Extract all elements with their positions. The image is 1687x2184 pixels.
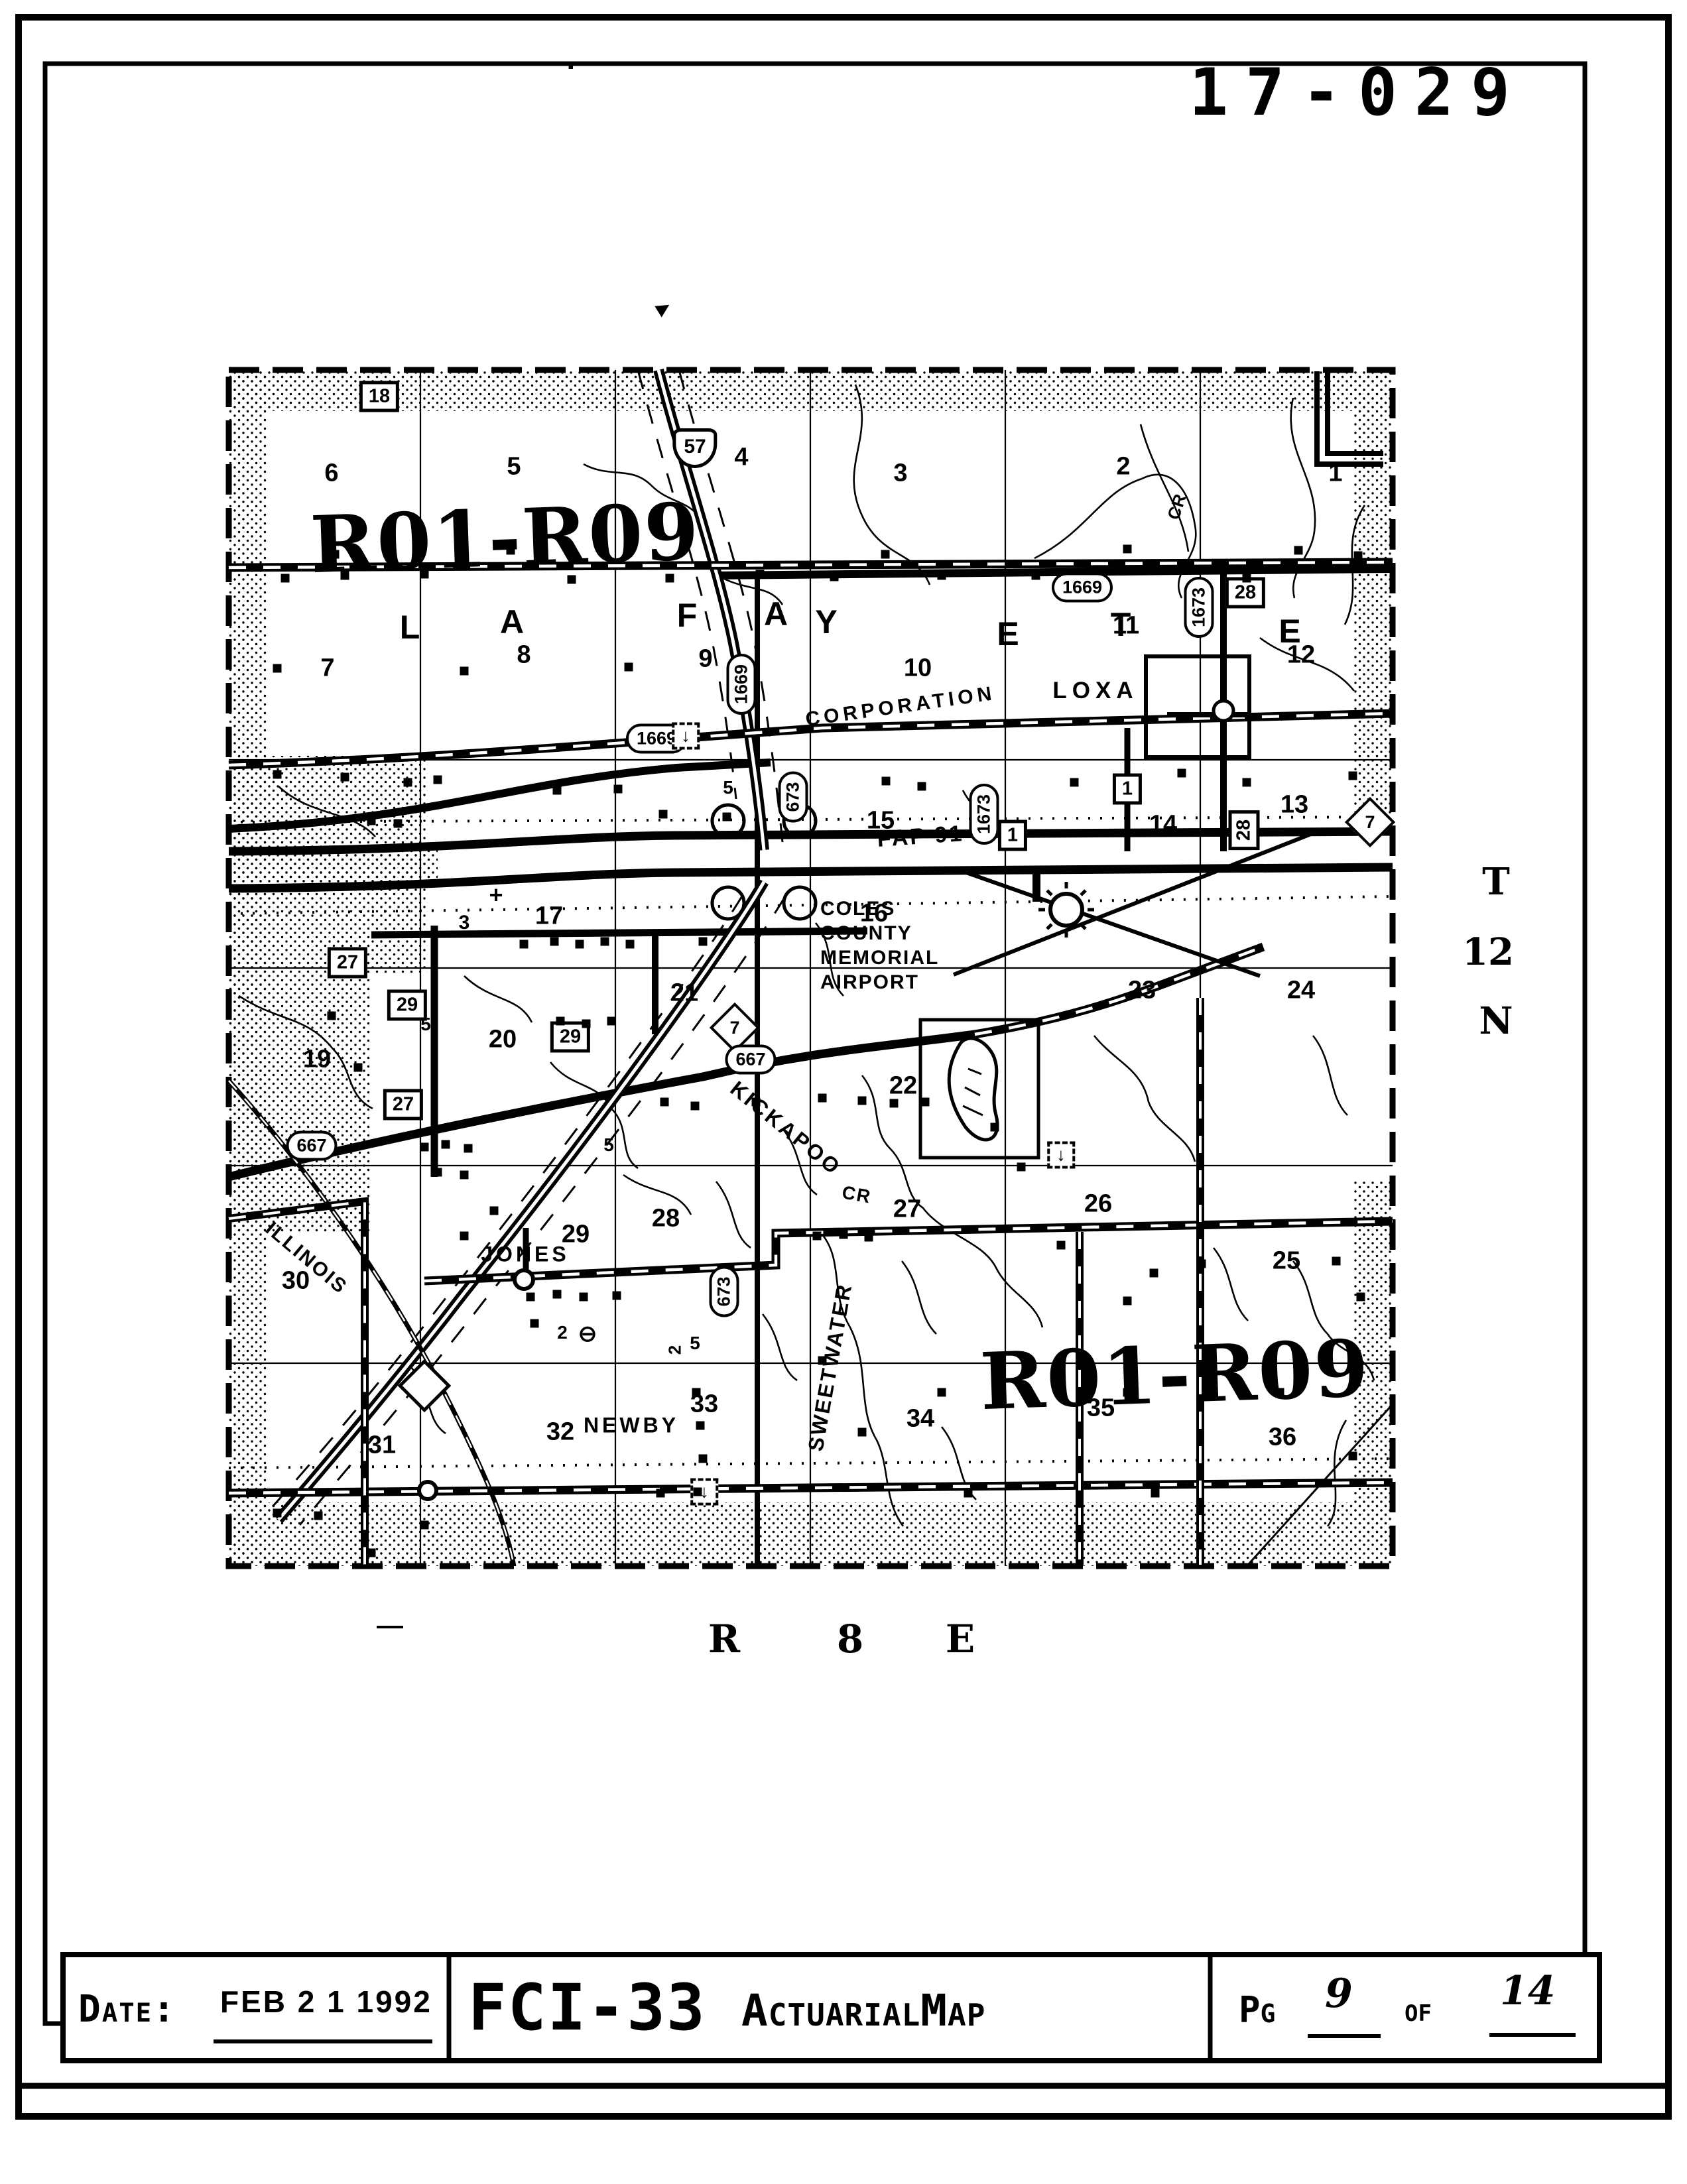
building-square	[434, 1168, 442, 1177]
building-square	[613, 1292, 621, 1300]
small-label: 2	[665, 1345, 686, 1355]
date-label: Date:	[78, 1988, 176, 2031]
building-square	[556, 1017, 565, 1026]
building-square	[830, 573, 839, 581]
section-number: 5	[507, 453, 521, 481]
building-square	[1243, 574, 1251, 583]
building-square	[1243, 778, 1251, 787]
airport-name-label: COLESCOUNTYMEMORIALAIRPORT	[820, 896, 939, 995]
building-square	[394, 819, 403, 828]
building-square	[273, 770, 282, 779]
place-label: LOXA	[1052, 678, 1138, 704]
page-total: 14	[1500, 1968, 1556, 2014]
place-label: NEWBY	[584, 1414, 679, 1438]
page-total-underline	[1489, 2033, 1576, 2037]
building-square	[752, 1098, 761, 1107]
small-label: 3	[459, 912, 470, 934]
building-square	[460, 1232, 469, 1241]
building-square	[507, 546, 515, 555]
route-marker-box: 27	[328, 947, 367, 979]
building-square	[881, 550, 890, 559]
section-number: 10	[904, 654, 932, 683]
section-number: 26	[1084, 1190, 1112, 1219]
building-square	[818, 1357, 827, 1365]
small-label: 2	[557, 1322, 568, 1343]
section-number: 30	[282, 1267, 310, 1296]
route-marker-oval: 1669	[1052, 573, 1113, 603]
building-square	[580, 1293, 588, 1302]
scanned-actuarial-map-page: 17-029 T 12 N R 8 E LAFAYETTELOXACORPORA…	[0, 0, 1687, 2184]
building-square	[1151, 1489, 1160, 1498]
section-number: 29	[562, 1221, 590, 1249]
section-number: 11	[1113, 612, 1139, 640]
small-label: 5	[603, 1134, 614, 1156]
section-number: 12	[1287, 641, 1315, 670]
building-square	[723, 813, 731, 821]
route-marker-box: 27	[383, 1089, 423, 1121]
building-square	[1123, 1388, 1132, 1397]
airport-name-line: COUNTY	[820, 921, 939, 945]
building-square	[341, 773, 349, 782]
building-square	[614, 785, 623, 794]
route-marker-box: 28	[1229, 810, 1260, 850]
building-square	[1198, 1260, 1206, 1268]
building-square	[699, 1455, 708, 1463]
building-square	[882, 777, 891, 786]
section-number: 25	[1273, 1247, 1300, 1276]
airport-name-line: MEMORIAL	[820, 945, 939, 970]
route-marker-oval: 667	[725, 1045, 776, 1075]
building-square	[1357, 1293, 1365, 1302]
building-square	[568, 576, 576, 584]
small-label: 5	[723, 777, 733, 798]
small-label: +	[489, 881, 503, 909]
building-square	[1150, 1269, 1158, 1278]
building-square	[691, 1102, 700, 1111]
building-square	[840, 1231, 848, 1239]
route-marker-box: 29	[387, 990, 427, 1021]
building-square	[1354, 552, 1363, 560]
building-square	[656, 1489, 665, 1498]
route-marker-box: 1	[1113, 774, 1142, 805]
route-marker-box: 18	[359, 381, 399, 412]
section-number: 7	[320, 654, 334, 683]
building-square	[890, 1099, 899, 1108]
building-square	[434, 776, 442, 784]
loxa-town-box	[1146, 656, 1249, 757]
airport-symbol	[954, 833, 1314, 976]
building-square	[938, 1388, 946, 1397]
building-square	[918, 782, 926, 791]
small-label: ⊖	[578, 1321, 597, 1347]
section-number: 6	[324, 459, 338, 488]
building-square	[314, 1512, 323, 1520]
section-number: 20	[489, 1026, 517, 1054]
building-square	[626, 940, 635, 949]
route-marker-oval: 1673	[1184, 577, 1214, 638]
date-underline	[214, 2039, 432, 2043]
building-square	[607, 1017, 616, 1026]
date-stamp: FEB 2 1 1992	[220, 1984, 432, 2020]
building-square	[460, 667, 469, 676]
route-marker-oval: 1673	[969, 784, 999, 845]
route-marker-oval: 673	[710, 1266, 739, 1317]
building-square	[404, 778, 412, 787]
building-square	[553, 786, 562, 795]
small-label: 5	[690, 1333, 700, 1354]
section-number: 36	[1269, 1424, 1296, 1452]
building-square	[692, 1388, 701, 1397]
building-square	[354, 1063, 363, 1072]
building-square	[1123, 545, 1132, 554]
section-number: 22	[889, 1072, 917, 1101]
section-number: 13	[1281, 791, 1308, 819]
building-square	[1070, 778, 1079, 787]
building-square	[921, 1098, 930, 1107]
building-square	[273, 664, 282, 673]
building-square	[1032, 572, 1040, 580]
small-label: —	[377, 1611, 403, 1641]
building-square	[666, 574, 674, 583]
place-label: E	[997, 615, 1019, 653]
building-square	[756, 570, 765, 579]
section-number: 1	[1328, 459, 1342, 488]
building-square	[1332, 1257, 1341, 1266]
page-number: 9	[1325, 1971, 1353, 2017]
building-square	[1178, 769, 1186, 778]
building-square	[660, 1098, 669, 1107]
form-name: ActuarialMap	[741, 1985, 985, 2036]
building-square	[464, 1144, 473, 1153]
building-square	[367, 817, 376, 825]
section-number: 24	[1287, 977, 1315, 1005]
building-square	[1349, 772, 1357, 780]
building-square	[625, 663, 633, 672]
section-number: 34	[906, 1405, 934, 1433]
building-square	[1123, 1297, 1132, 1305]
route-number: 7	[1355, 807, 1385, 837]
building-square	[1017, 1163, 1026, 1172]
section-number: 17	[535, 902, 563, 931]
building-square	[1057, 1241, 1066, 1250]
building-square	[281, 574, 290, 583]
building-square	[659, 810, 668, 819]
place-label: A	[764, 595, 788, 633]
section-number: 21	[670, 979, 698, 1008]
section-number: 27	[893, 1195, 921, 1224]
building-square	[818, 1094, 827, 1103]
airport-name-line: AIRPORT	[820, 970, 939, 995]
section-number: 23	[1128, 977, 1156, 1005]
building-square	[601, 938, 609, 946]
building-square	[858, 1097, 867, 1105]
building-square	[273, 1509, 282, 1518]
building-square	[813, 1232, 822, 1241]
building-square	[1276, 1388, 1284, 1397]
building-square	[938, 572, 946, 580]
section-number: 3	[893, 459, 907, 488]
building-square	[699, 938, 708, 946]
building-square	[1294, 546, 1303, 555]
building-square	[520, 940, 529, 949]
route-marker-oval: 1669	[727, 654, 757, 715]
building-square	[420, 570, 429, 579]
building-square	[991, 1123, 999, 1132]
building-square	[442, 1140, 450, 1149]
section-number: 28	[652, 1205, 680, 1233]
building-square	[865, 1233, 873, 1242]
r01-r09-stamp: R01-R09	[979, 1322, 1371, 1427]
route-marker-oval: 667	[286, 1131, 337, 1161]
section-number: 9	[698, 645, 712, 674]
section-number: 19	[303, 1046, 331, 1074]
page-number-underline	[1308, 2034, 1381, 2038]
section-number: 32	[546, 1418, 574, 1447]
building-square	[694, 1488, 702, 1496]
building-square	[858, 1428, 867, 1437]
building-square	[531, 1319, 539, 1328]
building-square	[576, 940, 584, 949]
place-label: A	[500, 603, 524, 641]
building-square	[367, 1549, 376, 1557]
section-number: 15	[867, 807, 895, 835]
doc-number: 17-029	[1189, 55, 1527, 131]
place-label: L	[400, 608, 420, 646]
page-label: Pg	[1239, 1989, 1275, 2031]
route-marker-dash: ↓	[672, 723, 700, 750]
building-square	[420, 1143, 429, 1152]
building-square	[341, 572, 349, 580]
small-label: ·	[566, 48, 576, 84]
building-square	[331, 550, 340, 559]
form-code: FCI-33	[468, 1971, 706, 2045]
airport-name-line: COLES	[820, 896, 939, 921]
route-marker-oval: 673	[779, 771, 808, 822]
building-square	[696, 1422, 705, 1430]
section-number: 8	[517, 641, 531, 670]
place-label: JONES	[481, 1243, 569, 1267]
building-square	[582, 1020, 591, 1028]
building-square	[527, 1293, 535, 1302]
r01-r09-stamp: R01-R09	[309, 485, 702, 591]
building-square	[490, 1207, 499, 1215]
section-number: 2	[1116, 453, 1130, 481]
section-number: 14	[1149, 811, 1177, 839]
place-label: F	[677, 596, 698, 635]
building-square	[964, 1489, 973, 1498]
section-number: 31	[368, 1431, 396, 1460]
route-number: 7	[719, 1012, 750, 1043]
section-number: 4	[734, 444, 748, 472]
building-square	[553, 1290, 562, 1299]
building-square	[328, 1012, 336, 1020]
building-square	[550, 938, 559, 946]
map-linework	[0, 0, 1687, 2184]
building-square	[420, 1521, 429, 1530]
place-label: Y	[815, 603, 837, 641]
building-square	[1349, 1452, 1357, 1461]
of-label: of	[1405, 1992, 1432, 2029]
building-square	[460, 1171, 469, 1180]
route-marker-box: 1	[998, 820, 1027, 851]
route-marker-dash: ↓	[1047, 1142, 1075, 1169]
